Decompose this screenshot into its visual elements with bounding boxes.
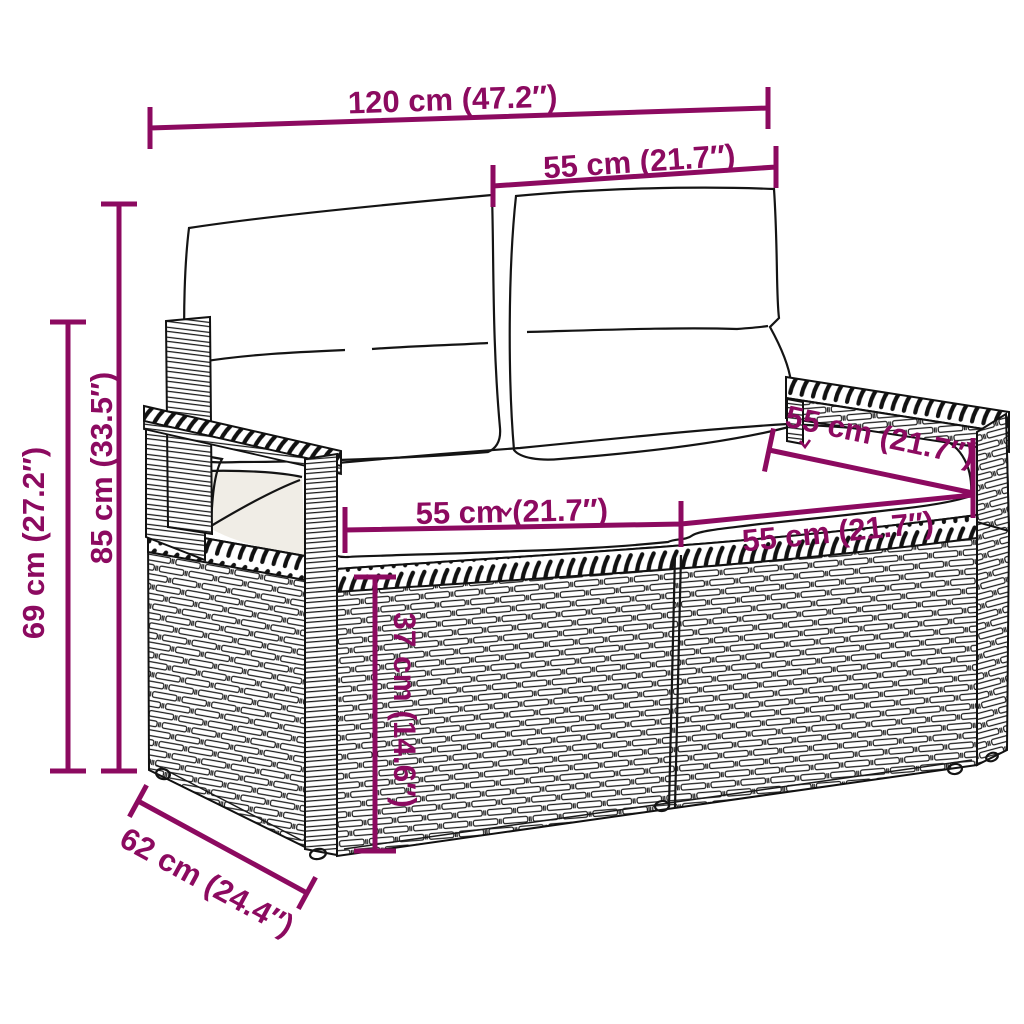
svg-text:120 cm (47.2″): 120 cm (47.2″)	[347, 79, 558, 121]
svg-text:37 cm (14.6″): 37 cm (14.6″)	[387, 612, 423, 807]
svg-text:85 cm (33.5″): 85 cm (33.5″)	[84, 372, 119, 564]
svg-text:55 cm (21.7″): 55 cm (21.7″)	[415, 492, 608, 531]
svg-text:55 cm (21.7″): 55 cm (21.7″)	[542, 138, 736, 186]
svg-text:69 cm (27.2″): 69 cm (27.2″)	[16, 447, 51, 639]
